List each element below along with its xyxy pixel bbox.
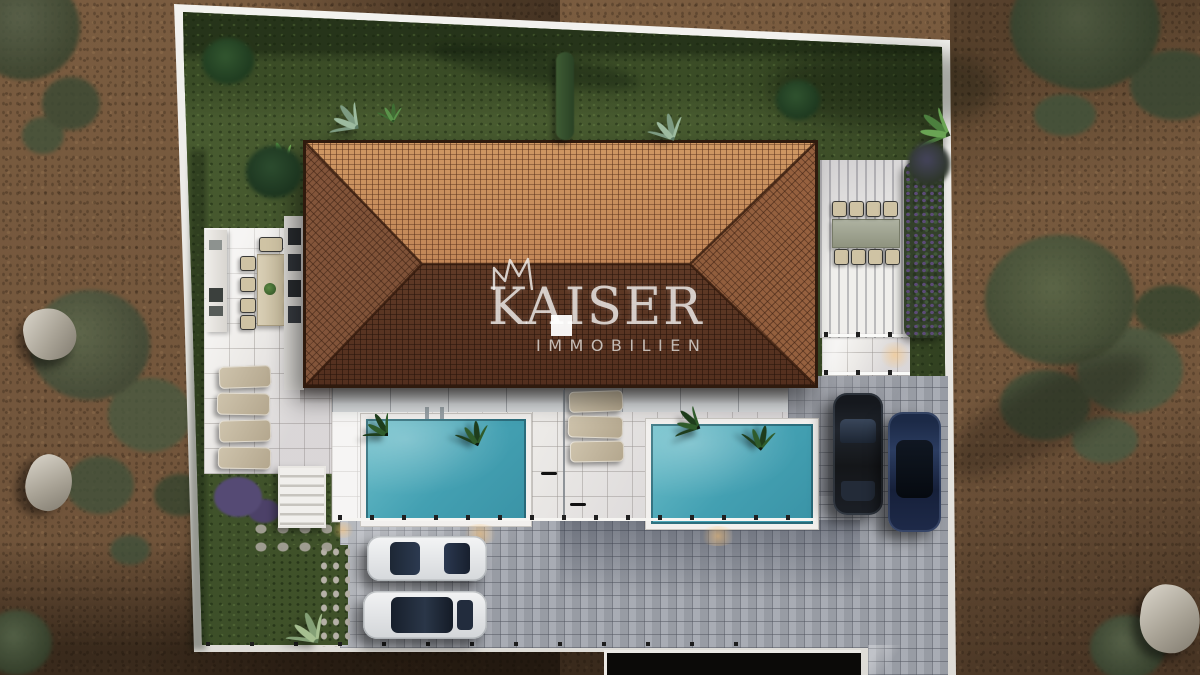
facade-window — [288, 254, 301, 271]
wall-light-glow — [330, 522, 356, 538]
cypress-hedge — [556, 52, 574, 140]
pergola-chair — [868, 249, 883, 265]
landing-posts-upper — [824, 332, 910, 337]
terrace-chair — [240, 298, 256, 313]
kitchen-sink — [209, 240, 222, 250]
car-rear-glass — [390, 542, 420, 575]
suv-rear-glass — [841, 481, 875, 501]
facade-window — [288, 306, 301, 323]
big-tree-right — [985, 235, 1135, 365]
bougainvillea-hedge — [904, 162, 944, 338]
terrace-lounger — [219, 365, 272, 389]
terrace-lounger — [219, 419, 272, 442]
kitchen-appliance — [209, 288, 223, 302]
watermark-square — [551, 315, 572, 336]
suv-windshield — [840, 419, 876, 443]
garden-bush — [776, 80, 820, 120]
watermark-subtitle: IMMOBILIEN — [536, 336, 728, 355]
black-suv — [833, 393, 883, 515]
garden-yucca — [239, 553, 329, 643]
lavender-bush — [214, 477, 262, 517]
watermark: KAISER IMMOBILIEN — [488, 282, 728, 355]
poolside-lounger — [570, 441, 624, 463]
terrace-lounger — [217, 393, 270, 416]
driveway-entrance — [868, 645, 948, 675]
car-windshield — [457, 600, 473, 630]
pergola-chair — [866, 201, 881, 217]
door-handle — [570, 503, 586, 506]
sedan-glass-roof — [896, 440, 933, 498]
car-windshield — [444, 543, 470, 574]
garden-agave — [277, 57, 358, 138]
pergola-corner-bush — [908, 142, 950, 186]
crown-icon — [490, 256, 536, 294]
pergola-table — [832, 219, 900, 248]
glass-door-track — [563, 390, 565, 518]
garden-stairs — [278, 466, 326, 528]
landing-posts-lower — [824, 370, 910, 375]
facade-window — [288, 228, 301, 245]
pergola-chair — [851, 249, 866, 265]
blue-sedan — [888, 412, 941, 532]
pergola-chair — [883, 201, 898, 217]
garage-opening — [604, 650, 861, 675]
terrace-chair — [240, 277, 256, 292]
garden-bush — [202, 38, 254, 84]
landing-lamp-glow — [878, 342, 912, 368]
poolside-lounger — [569, 390, 624, 413]
aerial-render: KAISER IMMOBILIEN — [0, 0, 1200, 675]
white-car-upper — [367, 536, 487, 581]
deck-edge-posts — [338, 515, 814, 520]
pool-palm — [326, 374, 388, 436]
pergola-chair — [849, 201, 864, 217]
poolside-lounger — [568, 415, 624, 438]
pergola-chair — [885, 249, 900, 265]
garden-conifer — [246, 146, 302, 198]
terrace-chair — [259, 237, 283, 252]
car-panoramic-roof — [391, 597, 453, 633]
terrace-lounger — [218, 447, 271, 470]
wall-light-glow — [698, 526, 738, 546]
pergola-chair — [832, 201, 847, 217]
pergola-chair — [834, 249, 849, 265]
table-plant — [264, 283, 276, 295]
terrace-chair — [240, 315, 256, 330]
white-car-lower — [363, 591, 487, 639]
south-wall-posts — [206, 642, 766, 646]
facade-window — [288, 280, 301, 297]
kitchen-appliance — [209, 306, 223, 316]
terrace-chair — [240, 256, 256, 271]
door-handle — [541, 472, 557, 475]
